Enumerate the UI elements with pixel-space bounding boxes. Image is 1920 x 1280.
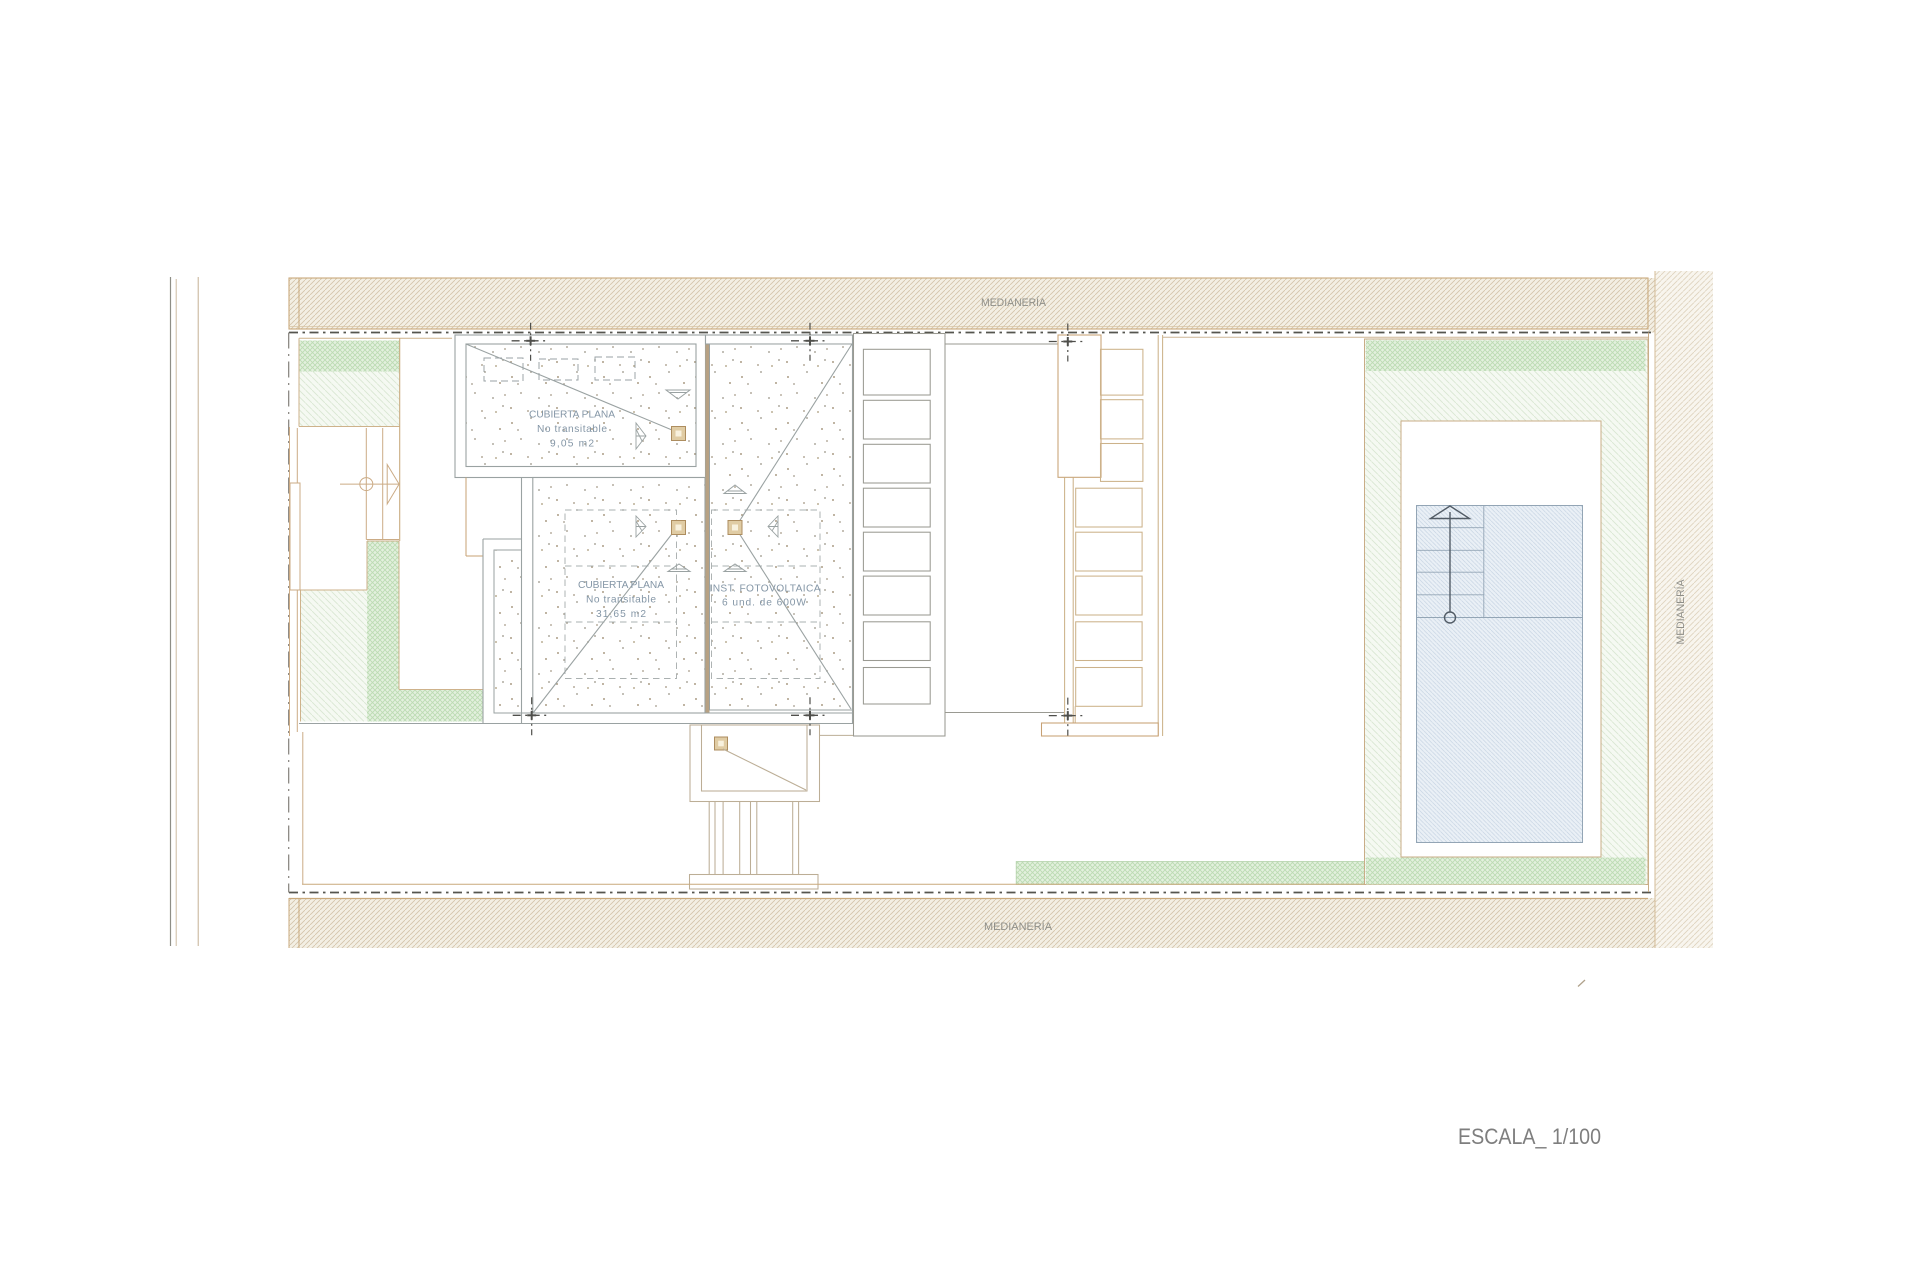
svg-text:MEDIANERÍA: MEDIANERÍA — [984, 920, 1053, 933]
svg-text:MEDIANERÍA: MEDIANERÍA — [981, 296, 1047, 309]
svg-text:No transitable: No transitable — [537, 424, 607, 435]
svg-text:ESCALA_ 1/100: ESCALA_ 1/100 — [1458, 1124, 1601, 1149]
svg-text:CUBIERTA PLANA: CUBIERTA PLANA — [529, 410, 615, 421]
svg-text:MEDIANERÍA: MEDIANERÍA — [1674, 579, 1687, 645]
svg-text:6 und. de 600W: 6 und. de 600W — [722, 598, 806, 609]
svg-text:No transitable: No transitable — [586, 595, 656, 606]
svg-text:CUBIERTA PLANA: CUBIERTA PLANA — [578, 580, 664, 591]
svg-text:9,05 m2: 9,05 m2 — [550, 439, 594, 450]
svg-text:31,65 m2: 31,65 m2 — [596, 609, 646, 620]
svg-text:INST. FOTOVOLTAICA: INST. FOTOVOLTAICA — [710, 584, 821, 595]
